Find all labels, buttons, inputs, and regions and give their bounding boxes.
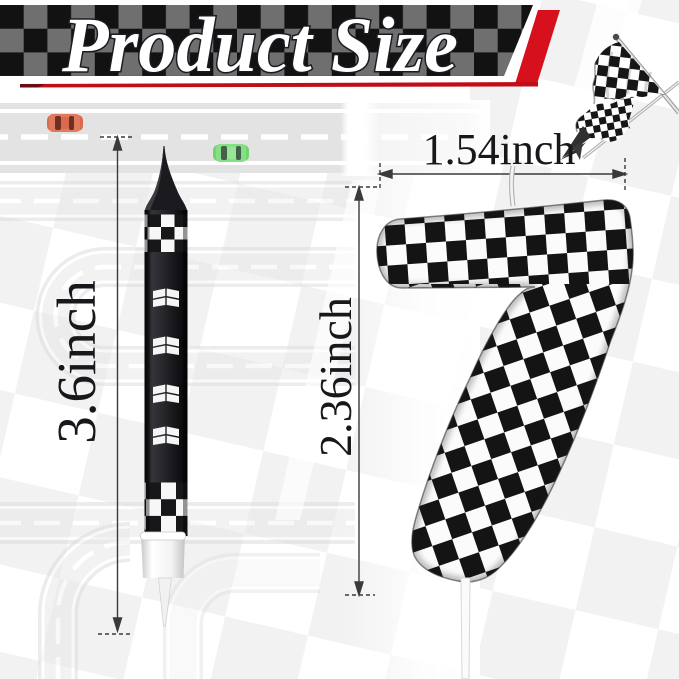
svg-text:1.54inch: 1.54inch xyxy=(423,125,576,174)
svg-text:2.36inch: 2.36inch xyxy=(310,297,361,457)
svg-text:3.6inch: 3.6inch xyxy=(46,280,107,443)
svg-text:Product Size: Product Size xyxy=(61,1,458,88)
